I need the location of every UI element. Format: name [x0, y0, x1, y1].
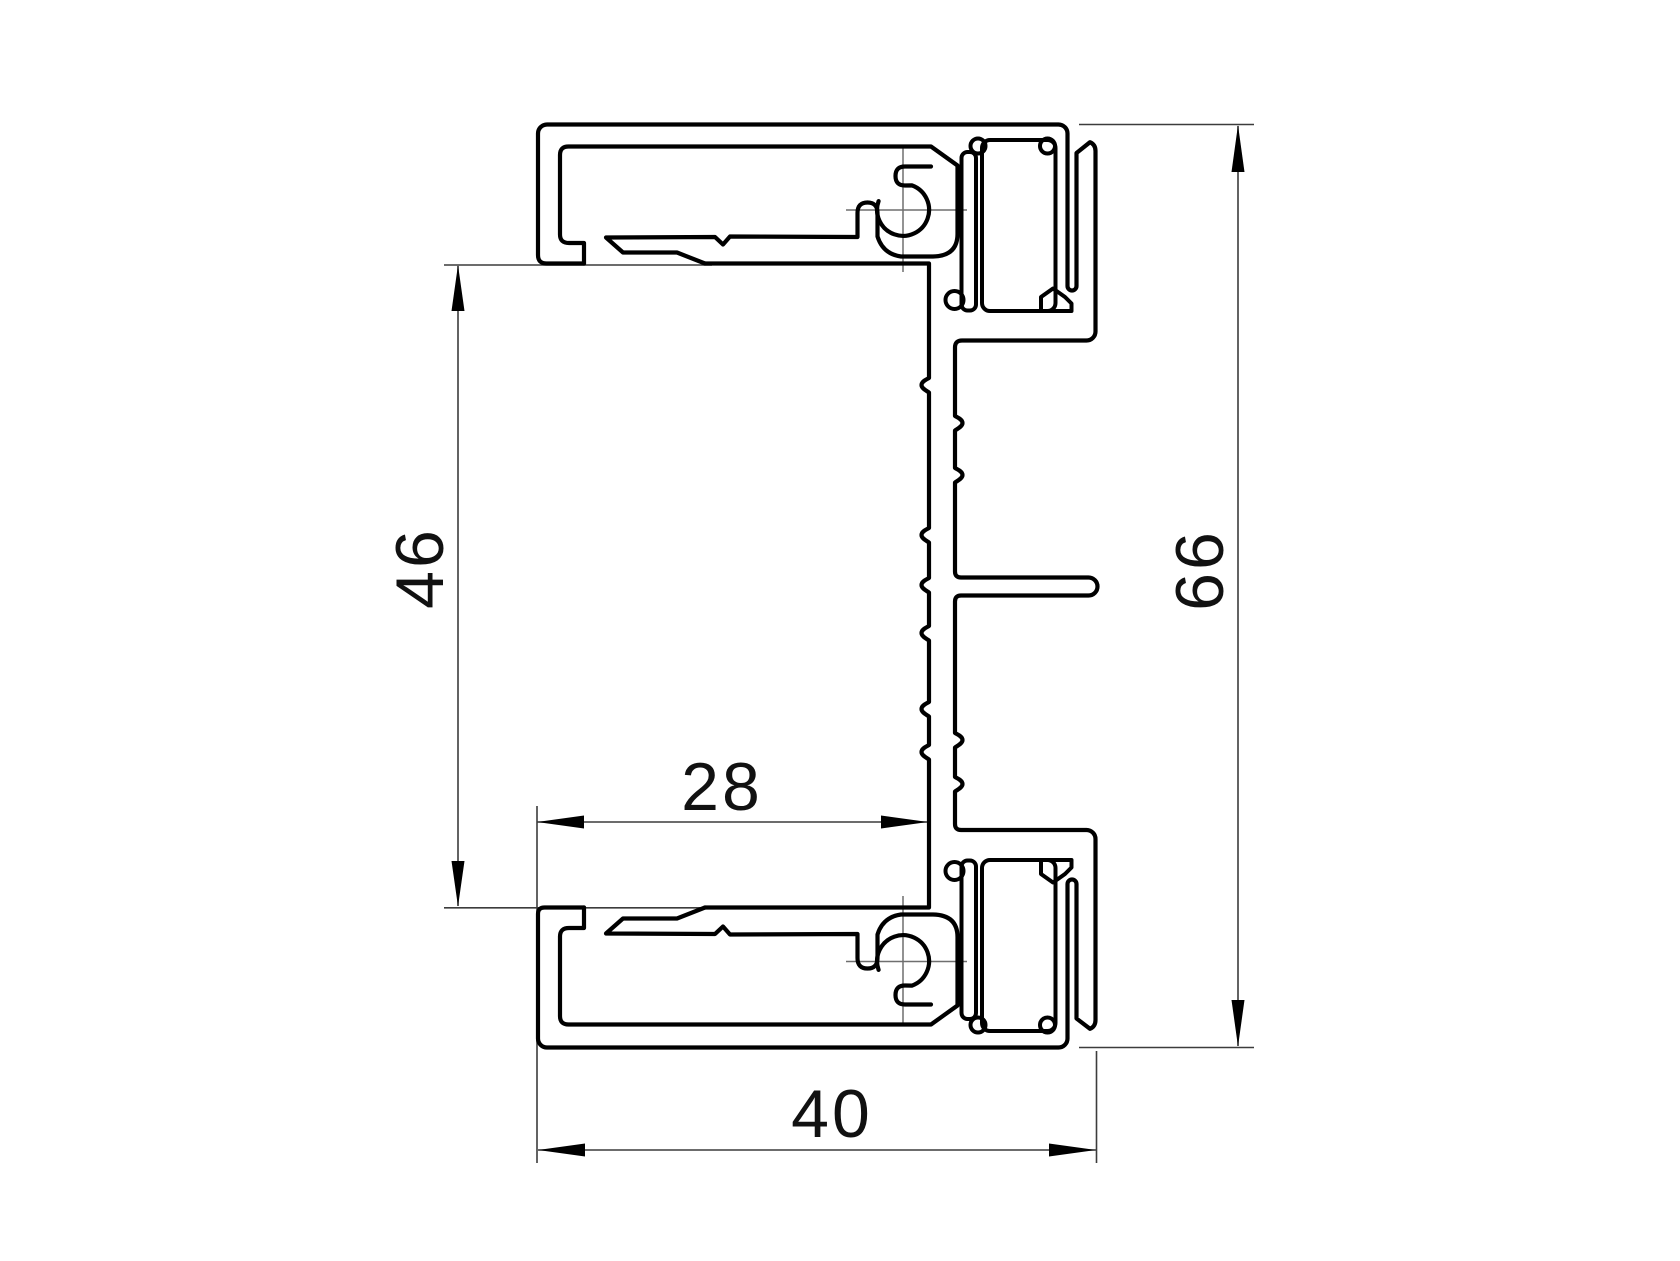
- profile-outline: [538, 125, 1098, 1048]
- top-accessory-channel: [946, 139, 1072, 312]
- top-chamber-inner: [560, 147, 958, 264]
- bottom-accessory-channel: [946, 860, 1072, 1033]
- arrowhead-66-up: [1232, 125, 1245, 172]
- dim-label-66: 66: [1162, 529, 1238, 611]
- dim-label-46: 46: [382, 527, 458, 609]
- top-channel-narrow-slot: [962, 152, 977, 311]
- dim-label-40: 40: [791, 1076, 873, 1152]
- arrowhead-40-right: [1049, 1144, 1096, 1157]
- drawing-canvas: 46 66 28 40: [0, 0, 1680, 1261]
- dimension-lines: [444, 125, 1254, 1164]
- bottom-chamber-inner: [560, 908, 958, 1025]
- arrowhead-40-left: [538, 1144, 585, 1157]
- arrowhead-46-down: [452, 861, 465, 907]
- top-screw-boss: [877, 167, 931, 236]
- top-channel-main-slot: [982, 140, 1056, 311]
- technical-drawing: 46 66 28 40: [0, 0, 1680, 1261]
- arrowhead-28-left: [537, 816, 584, 829]
- arrowhead-66-down: [1232, 1000, 1245, 1047]
- bottom-channel-narrow-slot: [962, 861, 977, 1020]
- dimension-labels: 46 66 28 40: [382, 527, 1238, 1152]
- bottom-screw-boss: [877, 935, 931, 1004]
- dim-label-28: 28: [681, 749, 763, 825]
- arrowhead-28-right: [881, 816, 928, 829]
- arrowhead-46-up: [452, 265, 465, 311]
- centerlines: [846, 148, 967, 1025]
- bottom-channel-main-slot: [982, 860, 1056, 1031]
